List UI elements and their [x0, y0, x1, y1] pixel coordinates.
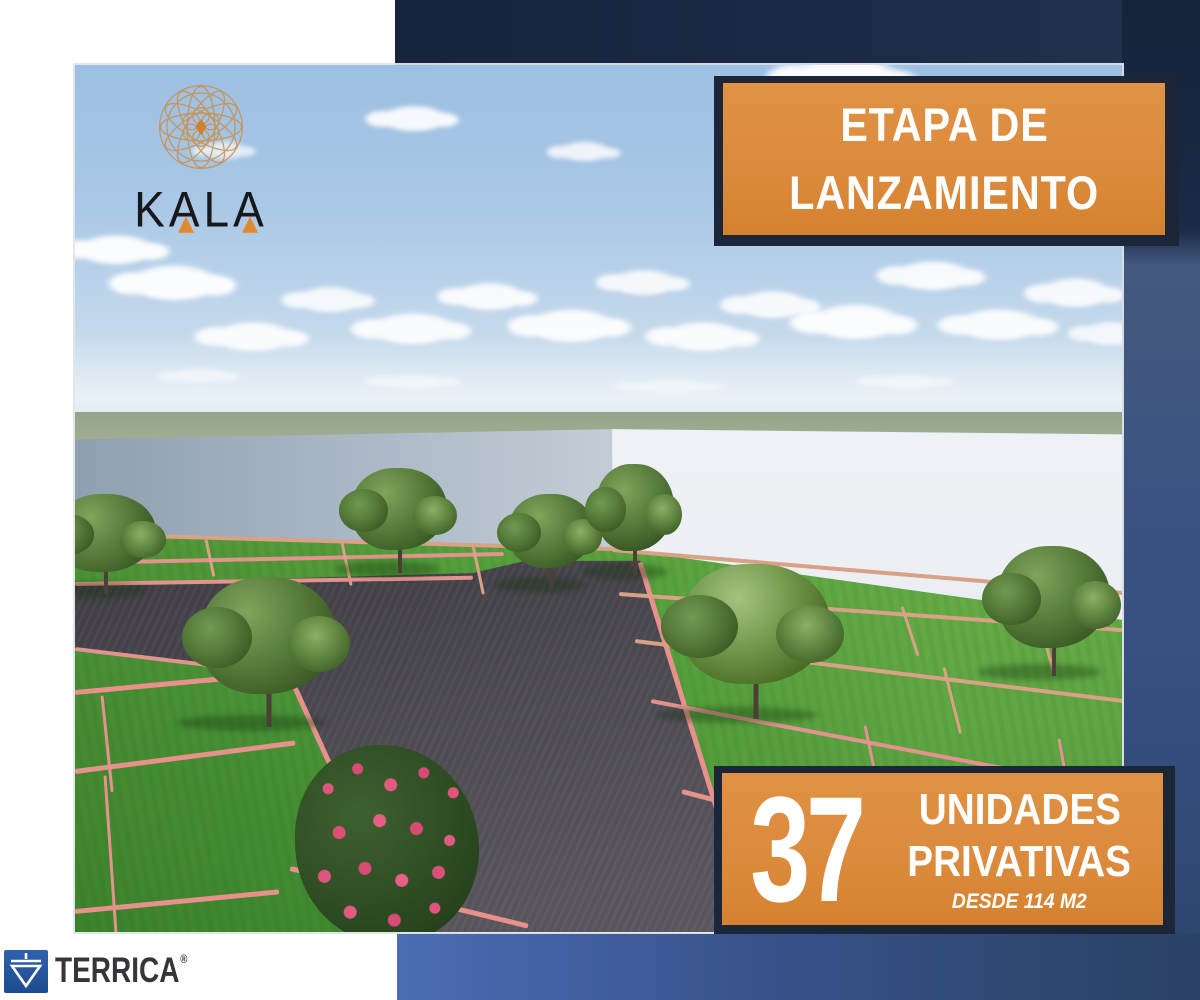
tree-canopy — [352, 468, 447, 550]
tree-shadow — [177, 715, 326, 731]
units-detail: DESDE 114 M2 — [952, 890, 1087, 914]
kala-letter: A — [169, 180, 204, 238]
tree-shadow — [655, 707, 818, 723]
units-text-column: UNIDADES PRIVATIVAS DESDE 114 M2 — [890, 784, 1149, 915]
kala-wordmark: KALA — [134, 180, 268, 238]
tree — [998, 546, 1110, 676]
kala-logo: KALA — [101, 81, 301, 251]
units-banner: 37 UNIDADES PRIVATIVAS DESDE 114 M2 — [722, 773, 1163, 925]
units-banner-plate: 37 UNIDADES PRIVATIVAS DESDE 114 M2 — [714, 766, 1175, 934]
background-bottom-band — [397, 933, 1200, 1000]
launch-banner: ETAPA DE LANZAMIENTO — [723, 83, 1165, 235]
background-top-band — [395, 0, 1122, 66]
units-line2: PRIVATIVAS — [908, 836, 1132, 888]
tree — [509, 494, 594, 589]
tree-shadow — [335, 561, 440, 577]
registered-mark: ® — [180, 952, 187, 966]
kala-mandala-icon — [155, 81, 247, 173]
tree — [352, 468, 447, 573]
tree — [682, 564, 830, 719]
terrica-company-name: TERRICA — [55, 951, 179, 990]
units-count: 37 — [746, 774, 867, 924]
kala-letter: A — [233, 180, 268, 238]
terrica-wordmark: TERRICA® — [55, 951, 187, 991]
kala-letter: K — [134, 180, 169, 238]
tree-shadow — [494, 577, 588, 593]
kala-letter: L — [204, 180, 234, 238]
tree-shadow — [582, 564, 668, 580]
launch-banner-line2: LANZAMIENTO — [789, 159, 1099, 227]
launch-banner-plate: ETAPA DE LANZAMIENTO — [714, 76, 1179, 246]
tree-canopy — [509, 494, 594, 568]
tree-canopy — [682, 564, 830, 685]
launch-banner-line1: ETAPA DE — [840, 91, 1048, 159]
tree-canopy — [998, 546, 1110, 647]
tree-shadow — [978, 664, 1101, 680]
tree — [201, 577, 336, 727]
tree — [75, 494, 156, 594]
terrica-triangle-icon — [4, 949, 49, 994]
tree-canopy — [75, 494, 156, 572]
units-line1: UNIDADES — [918, 784, 1120, 836]
terrica-logo: TERRICA® — [4, 947, 219, 995]
tree-canopy — [596, 464, 674, 551]
tree-shadow — [75, 582, 148, 598]
tree — [596, 464, 674, 576]
tree-canopy — [201, 577, 336, 694]
